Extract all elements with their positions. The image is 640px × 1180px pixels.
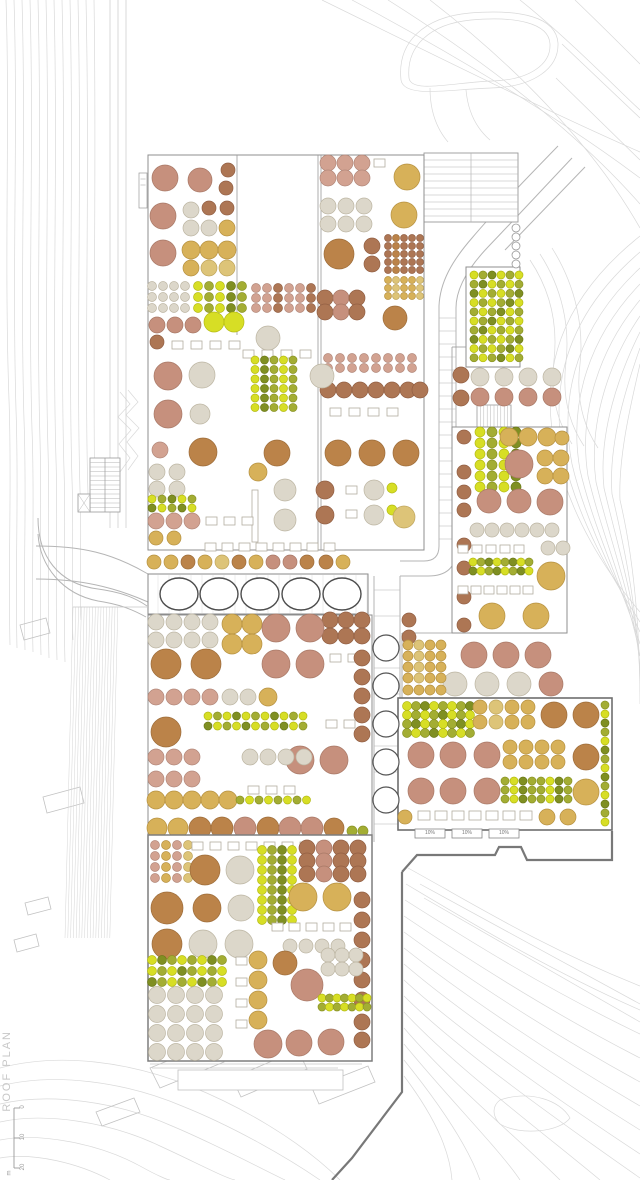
contours-bottomright bbox=[404, 868, 640, 1180]
ramp-slope-label: 10% bbox=[415, 829, 445, 838]
planting-block-R1 bbox=[466, 267, 523, 367]
planting-block-L3 bbox=[148, 835, 373, 1061]
contours-left bbox=[6, 0, 139, 662]
stair-structure bbox=[90, 458, 120, 512]
retaining-walls bbox=[332, 831, 612, 1180]
skylight-band bbox=[148, 574, 368, 614]
planting-block-R4 bbox=[398, 698, 612, 830]
courtyard-tree-circles bbox=[373, 635, 399, 813]
planting-block-R3 bbox=[452, 427, 570, 633]
elevator-box bbox=[78, 494, 90, 512]
ramp-slope-label: 10% bbox=[452, 829, 482, 838]
scalebar-tick-20: 20 bbox=[20, 1161, 26, 1173]
slope-hatch bbox=[65, 607, 118, 938]
planting-block-L2 bbox=[147, 612, 372, 839]
page-title: ROOF PLAN bbox=[1, 1030, 13, 1112]
planting-block-M0 bbox=[147, 555, 350, 569]
scalebar-tick-0: 0 bbox=[20, 1101, 26, 1113]
site-plan-svg bbox=[0, 0, 640, 1180]
parking-structure bbox=[424, 153, 518, 222]
edge-label-box bbox=[139, 173, 147, 208]
scalebar-tick-10: 10 bbox=[20, 1131, 26, 1143]
roadside-tree-circles bbox=[512, 224, 520, 268]
scalebar-unit: m bbox=[7, 1171, 13, 1176]
roof-plan-drawing: ROOF PLAN 0 10 20 m 10% 10% 10% bbox=[0, 0, 640, 1180]
planting-block-L1 bbox=[148, 155, 429, 551]
ramp-slope-label: 10% bbox=[489, 829, 519, 838]
site-path-lines bbox=[110, 0, 126, 528]
stair-structure bbox=[477, 405, 511, 427]
